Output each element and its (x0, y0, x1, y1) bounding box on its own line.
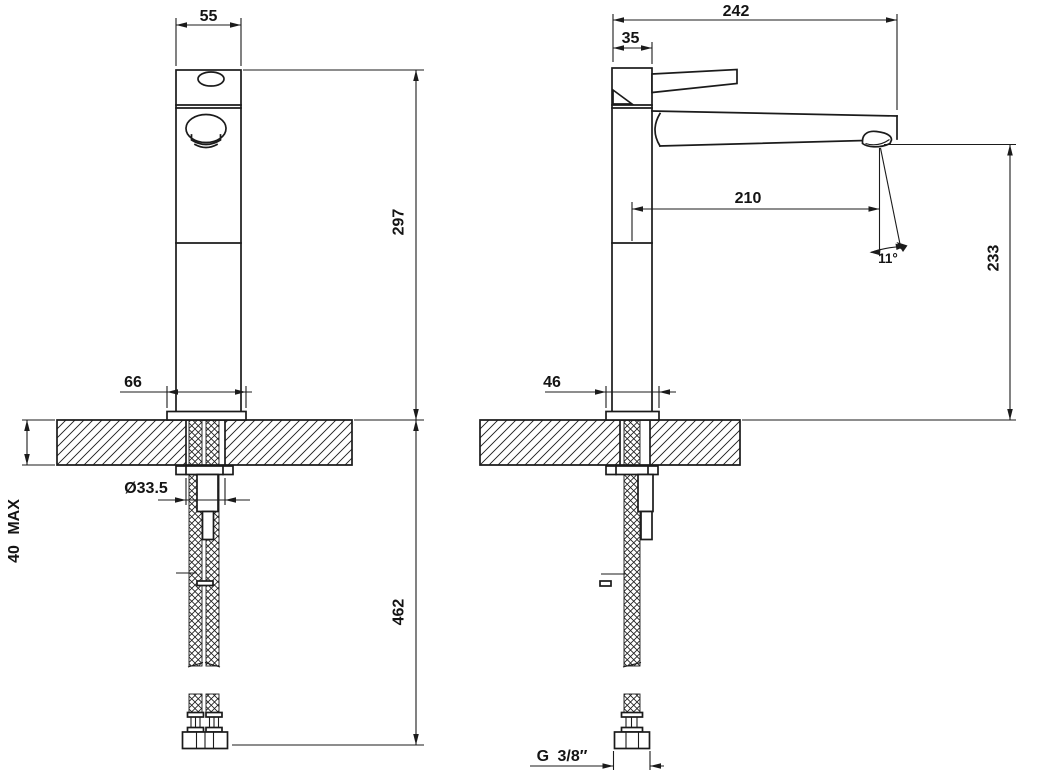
arrowhead (413, 409, 419, 420)
arrowhead (595, 389, 606, 395)
dim-lines-base-depth (545, 386, 676, 408)
arrowhead (1007, 145, 1013, 156)
hose-end-braid-front-left (189, 694, 202, 713)
fixing-stud-clip-side (600, 581, 611, 586)
front-view (57, 70, 352, 749)
arrowhead (613, 17, 624, 23)
countertop-front-right-section (225, 420, 352, 465)
arrowhead (603, 763, 614, 769)
supply-hose-side (624, 420, 640, 666)
arrowhead (413, 420, 419, 431)
supply-hose-front-right (206, 420, 219, 666)
hose-end-braid-front-right (206, 694, 219, 713)
spout-top-edge (652, 111, 897, 116)
dim-lines-hose-length (232, 420, 424, 745)
dim-spout-reach: 210 (735, 190, 762, 207)
arrowhead (167, 389, 178, 395)
dim-hole-diameter: Ø33.5 (124, 480, 168, 497)
arrowhead (641, 45, 652, 51)
spout-bottom-edge (660, 141, 864, 147)
dim-connection-thread: G 3/8″ (537, 748, 588, 765)
fixing-nut-side (606, 466, 658, 475)
arrowhead (659, 389, 670, 395)
arrowhead (176, 22, 187, 28)
dim-lines-height-above-deck (243, 70, 424, 420)
dim-base-depth: 46 (543, 374, 561, 391)
arrowhead (413, 734, 419, 745)
shank-tube-side (638, 475, 653, 512)
dim-height-above-deck: 297 (391, 209, 408, 236)
side-view-dimensions: 242 35 210 11° 233 46 G 3/8″ (530, 3, 1016, 770)
faucet-body-front (176, 70, 241, 412)
lever-handle-side (652, 70, 737, 93)
countertop-side-left-section (480, 420, 620, 465)
arrowhead (650, 763, 661, 769)
stream-angle-line (881, 148, 902, 249)
arrowhead (1007, 409, 1013, 420)
dim-max-deck-thickness: 40 MAX (6, 499, 23, 563)
dim-hose-length: 462 (391, 599, 408, 626)
supply-hose-front-left (189, 420, 202, 666)
arrowhead (869, 206, 880, 212)
base-flange-front (167, 412, 246, 421)
countertop-front-left-section (57, 420, 186, 465)
drawing-canvas: 55 297 66 40 MAX Ø33.5 462 242 (0, 0, 1045, 783)
technical-drawing-sheet: 55 297 66 40 MAX Ø33.5 462 242 (0, 0, 1045, 783)
arrowhead (413, 70, 419, 81)
crimp-collar-front-left-top (188, 713, 204, 718)
dim-base-width: 66 (124, 374, 142, 391)
dim-overall-depth: 242 (723, 3, 750, 20)
shank-tube-front-step (203, 512, 214, 540)
crimp-collar-side-top (622, 713, 643, 718)
dim-lines-overall-depth (613, 14, 897, 110)
fixing-nut-front (176, 466, 233, 475)
arrowhead (24, 454, 30, 465)
crimp-ribs-front-left (191, 717, 200, 728)
base-flange-side (606, 412, 659, 421)
arrowhead (230, 22, 241, 28)
spout-root-arc (655, 114, 660, 147)
dim-body-width: 55 (200, 8, 218, 25)
hose-end-braid-side (624, 694, 640, 713)
arrowhead (175, 497, 186, 503)
arrowhead (886, 17, 897, 23)
dim-height-above-deck-side: 233 (986, 245, 1003, 272)
fixing-stud-clip-front (197, 581, 213, 586)
shank-tube-side-step (641, 512, 652, 540)
dim-body-depth: 35 (622, 30, 640, 47)
hose-nut-side (615, 732, 650, 749)
dim-stream-angle: 11° (878, 251, 898, 266)
side-view (480, 68, 908, 749)
arrowhead (24, 420, 30, 431)
crimp-ribs-front-right (210, 717, 219, 728)
countertop-side-right-section (650, 420, 740, 465)
crimp-ribs-side (626, 717, 637, 728)
arrowhead (225, 497, 236, 503)
dim-lines-spout-reach (632, 202, 880, 241)
crimp-collar-front-right-top (206, 713, 222, 718)
shank-tube-front (197, 475, 218, 512)
